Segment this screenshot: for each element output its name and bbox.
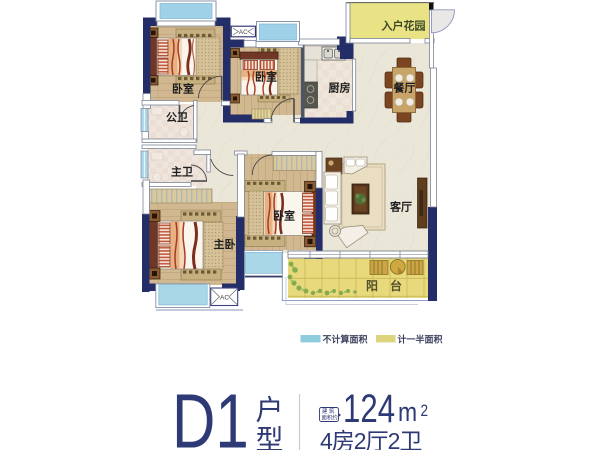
svg-text:不计算面积: 不计算面积 (323, 334, 368, 345)
svg-text:卧室: 卧室 (172, 82, 194, 96)
svg-text:卧室: 卧室 (255, 70, 277, 84)
svg-text:公卫: 公卫 (166, 111, 188, 124)
svg-text:户: 户 (256, 395, 284, 426)
svg-text:入户花园: 入户花园 (382, 19, 426, 33)
svg-text:卧室: 卧室 (273, 209, 295, 223)
svg-text:AC: AC (239, 29, 248, 36)
svg-text:计一半面积: 计一半面积 (398, 334, 443, 345)
svg-text:AC: AC (220, 295, 229, 302)
svg-text:主卫: 主卫 (171, 165, 193, 179)
svg-text:124: 124 (343, 386, 395, 430)
svg-text:餐厅: 餐厅 (393, 80, 416, 94)
svg-text:面积约: 面积约 (322, 414, 338, 422)
svg-text:2: 2 (421, 402, 429, 421)
svg-text:m: m (398, 397, 417, 427)
svg-text:D1: D1 (172, 377, 249, 450)
svg-text:4房2厅2卫: 4房2厅2卫 (320, 428, 421, 450)
svg-text:厨房: 厨房 (329, 81, 351, 95)
svg-text:主卧: 主卧 (214, 237, 236, 251)
svg-text:客厅: 客厅 (389, 200, 412, 214)
svg-text:型: 型 (256, 425, 284, 450)
svg-text:阳台: 阳台 (366, 278, 414, 293)
svg-text:建 筑: 建 筑 (322, 407, 335, 415)
